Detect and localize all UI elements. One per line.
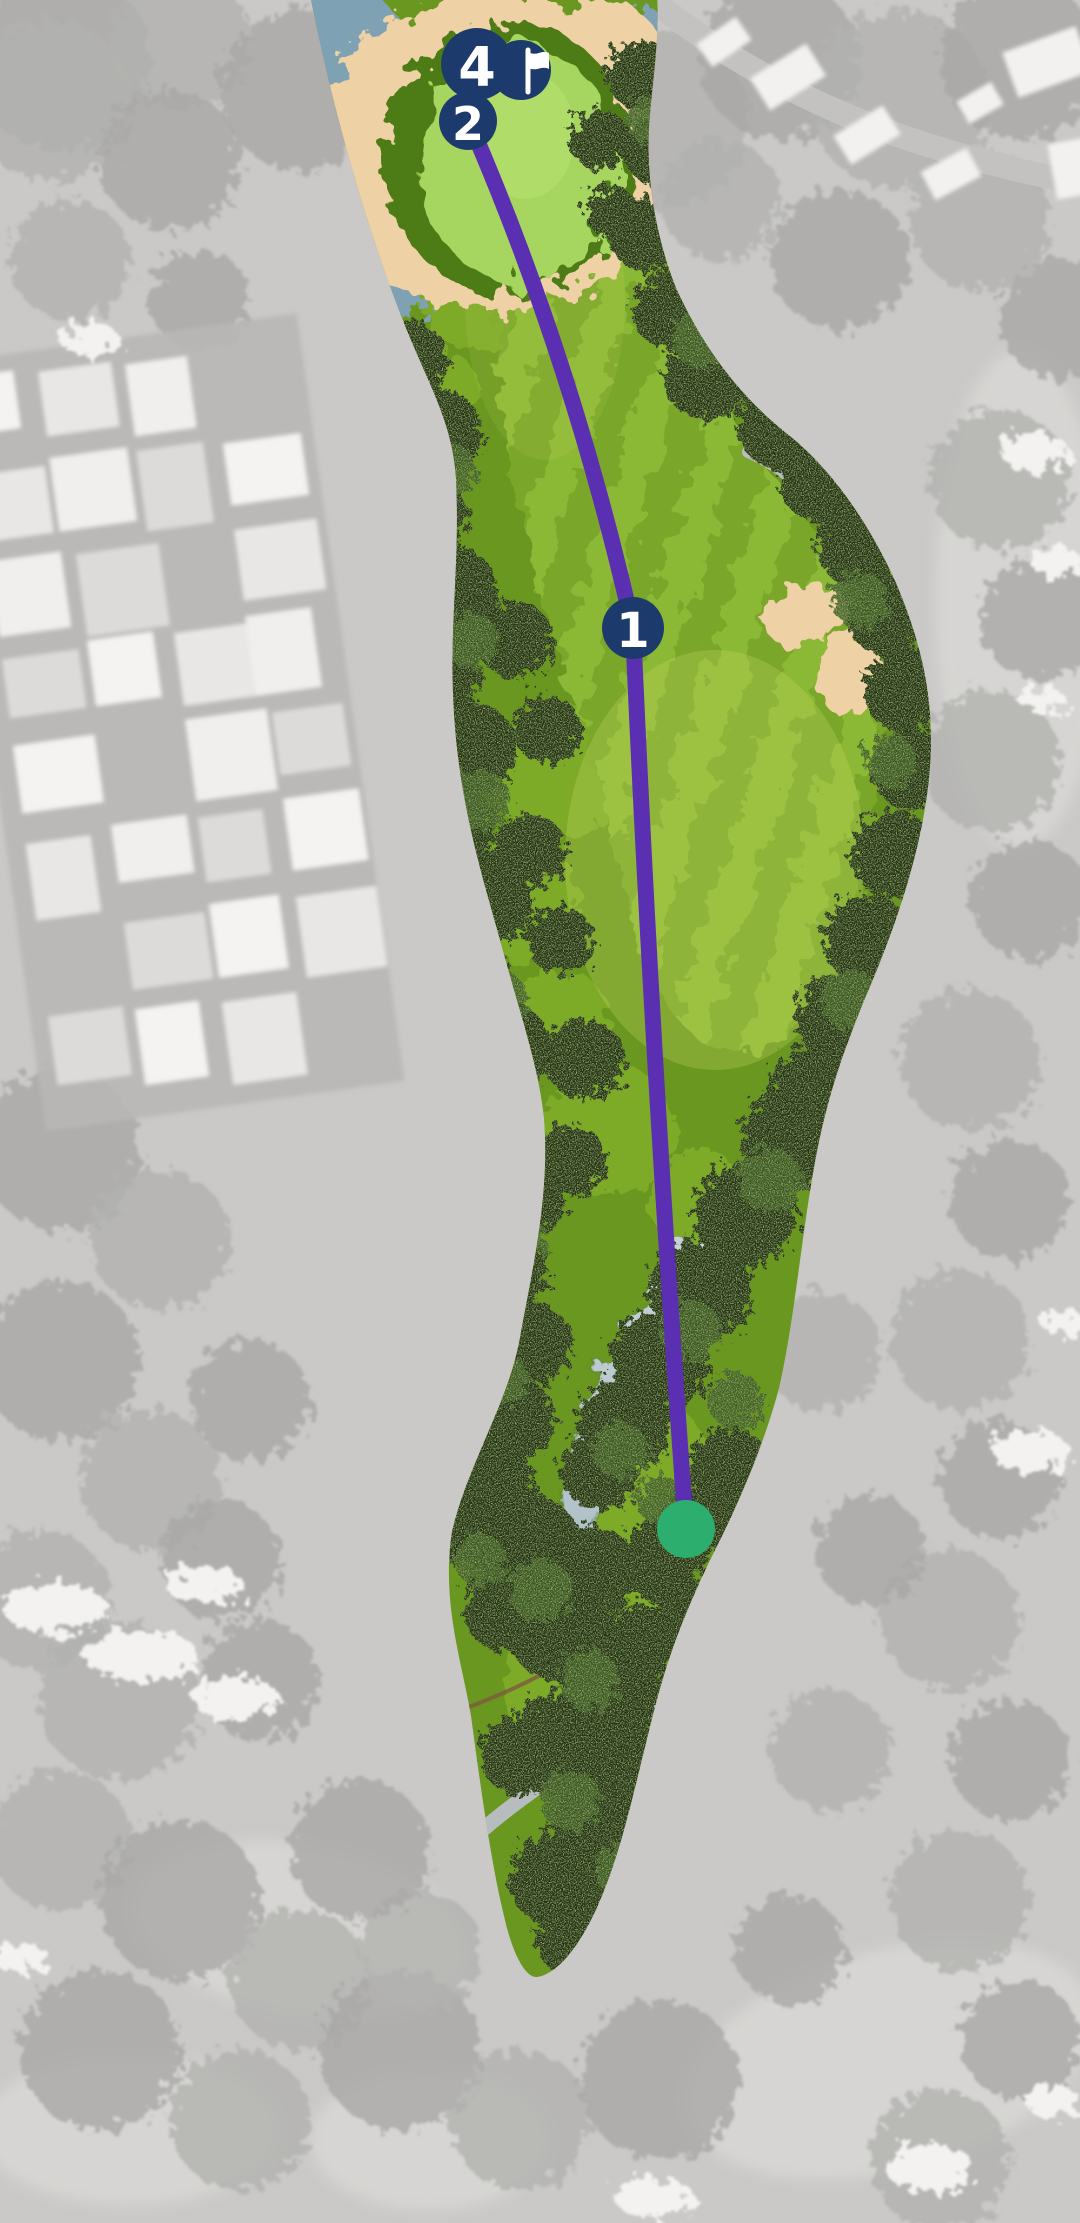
tee-marker-dot[interactable] xyxy=(657,1500,715,1558)
marker-label: 4 xyxy=(458,36,496,99)
marker-label: 1 xyxy=(616,603,649,659)
marker-label: 2 xyxy=(452,97,484,151)
shot-marker-4[interactable]: 4 xyxy=(441,28,513,100)
shot-marker-1[interactable]: 1 xyxy=(602,597,664,659)
golf-hole-map[interactable]: 4 2 1 xyxy=(0,0,1080,2223)
